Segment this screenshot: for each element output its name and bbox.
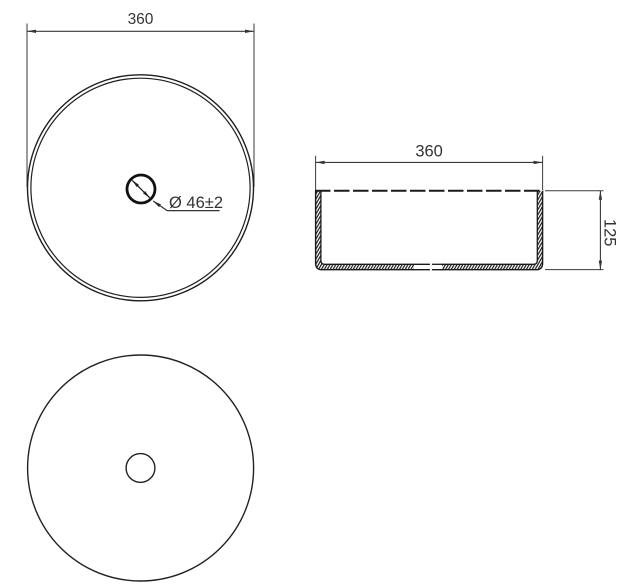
svg-text:360: 360 (415, 143, 443, 161)
svg-text:360: 360 (128, 11, 154, 28)
svg-text:125: 125 (601, 219, 619, 247)
svg-text:Ø 46±2: Ø 46±2 (169, 194, 223, 212)
